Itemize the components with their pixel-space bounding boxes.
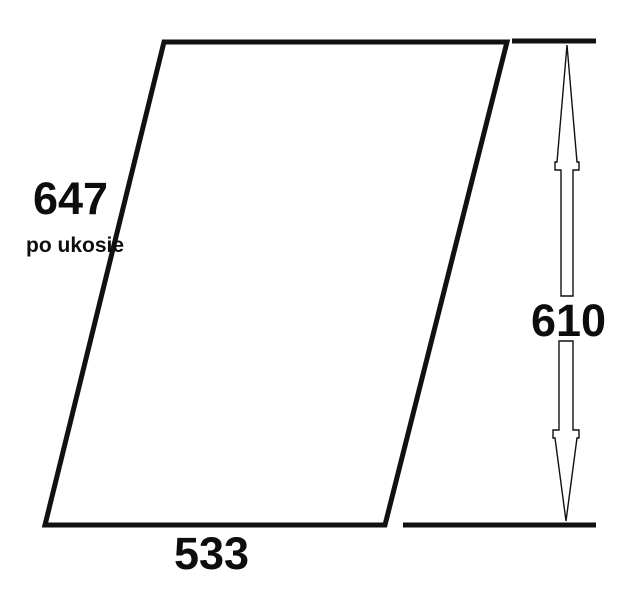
dimension-diagram: 647 po ukosie 610 533 [0, 0, 625, 595]
slant-dimension-qualifier: po ukosie [26, 235, 124, 256]
dimension-arrow-up-icon [555, 45, 579, 296]
panel-outline [45, 42, 507, 525]
dimension-arrow-down-icon [553, 341, 579, 521]
width-dimension-value: 533 [174, 531, 249, 576]
height-dimension-value: 610 [531, 298, 606, 343]
slant-dimension-value: 647 [33, 176, 108, 221]
